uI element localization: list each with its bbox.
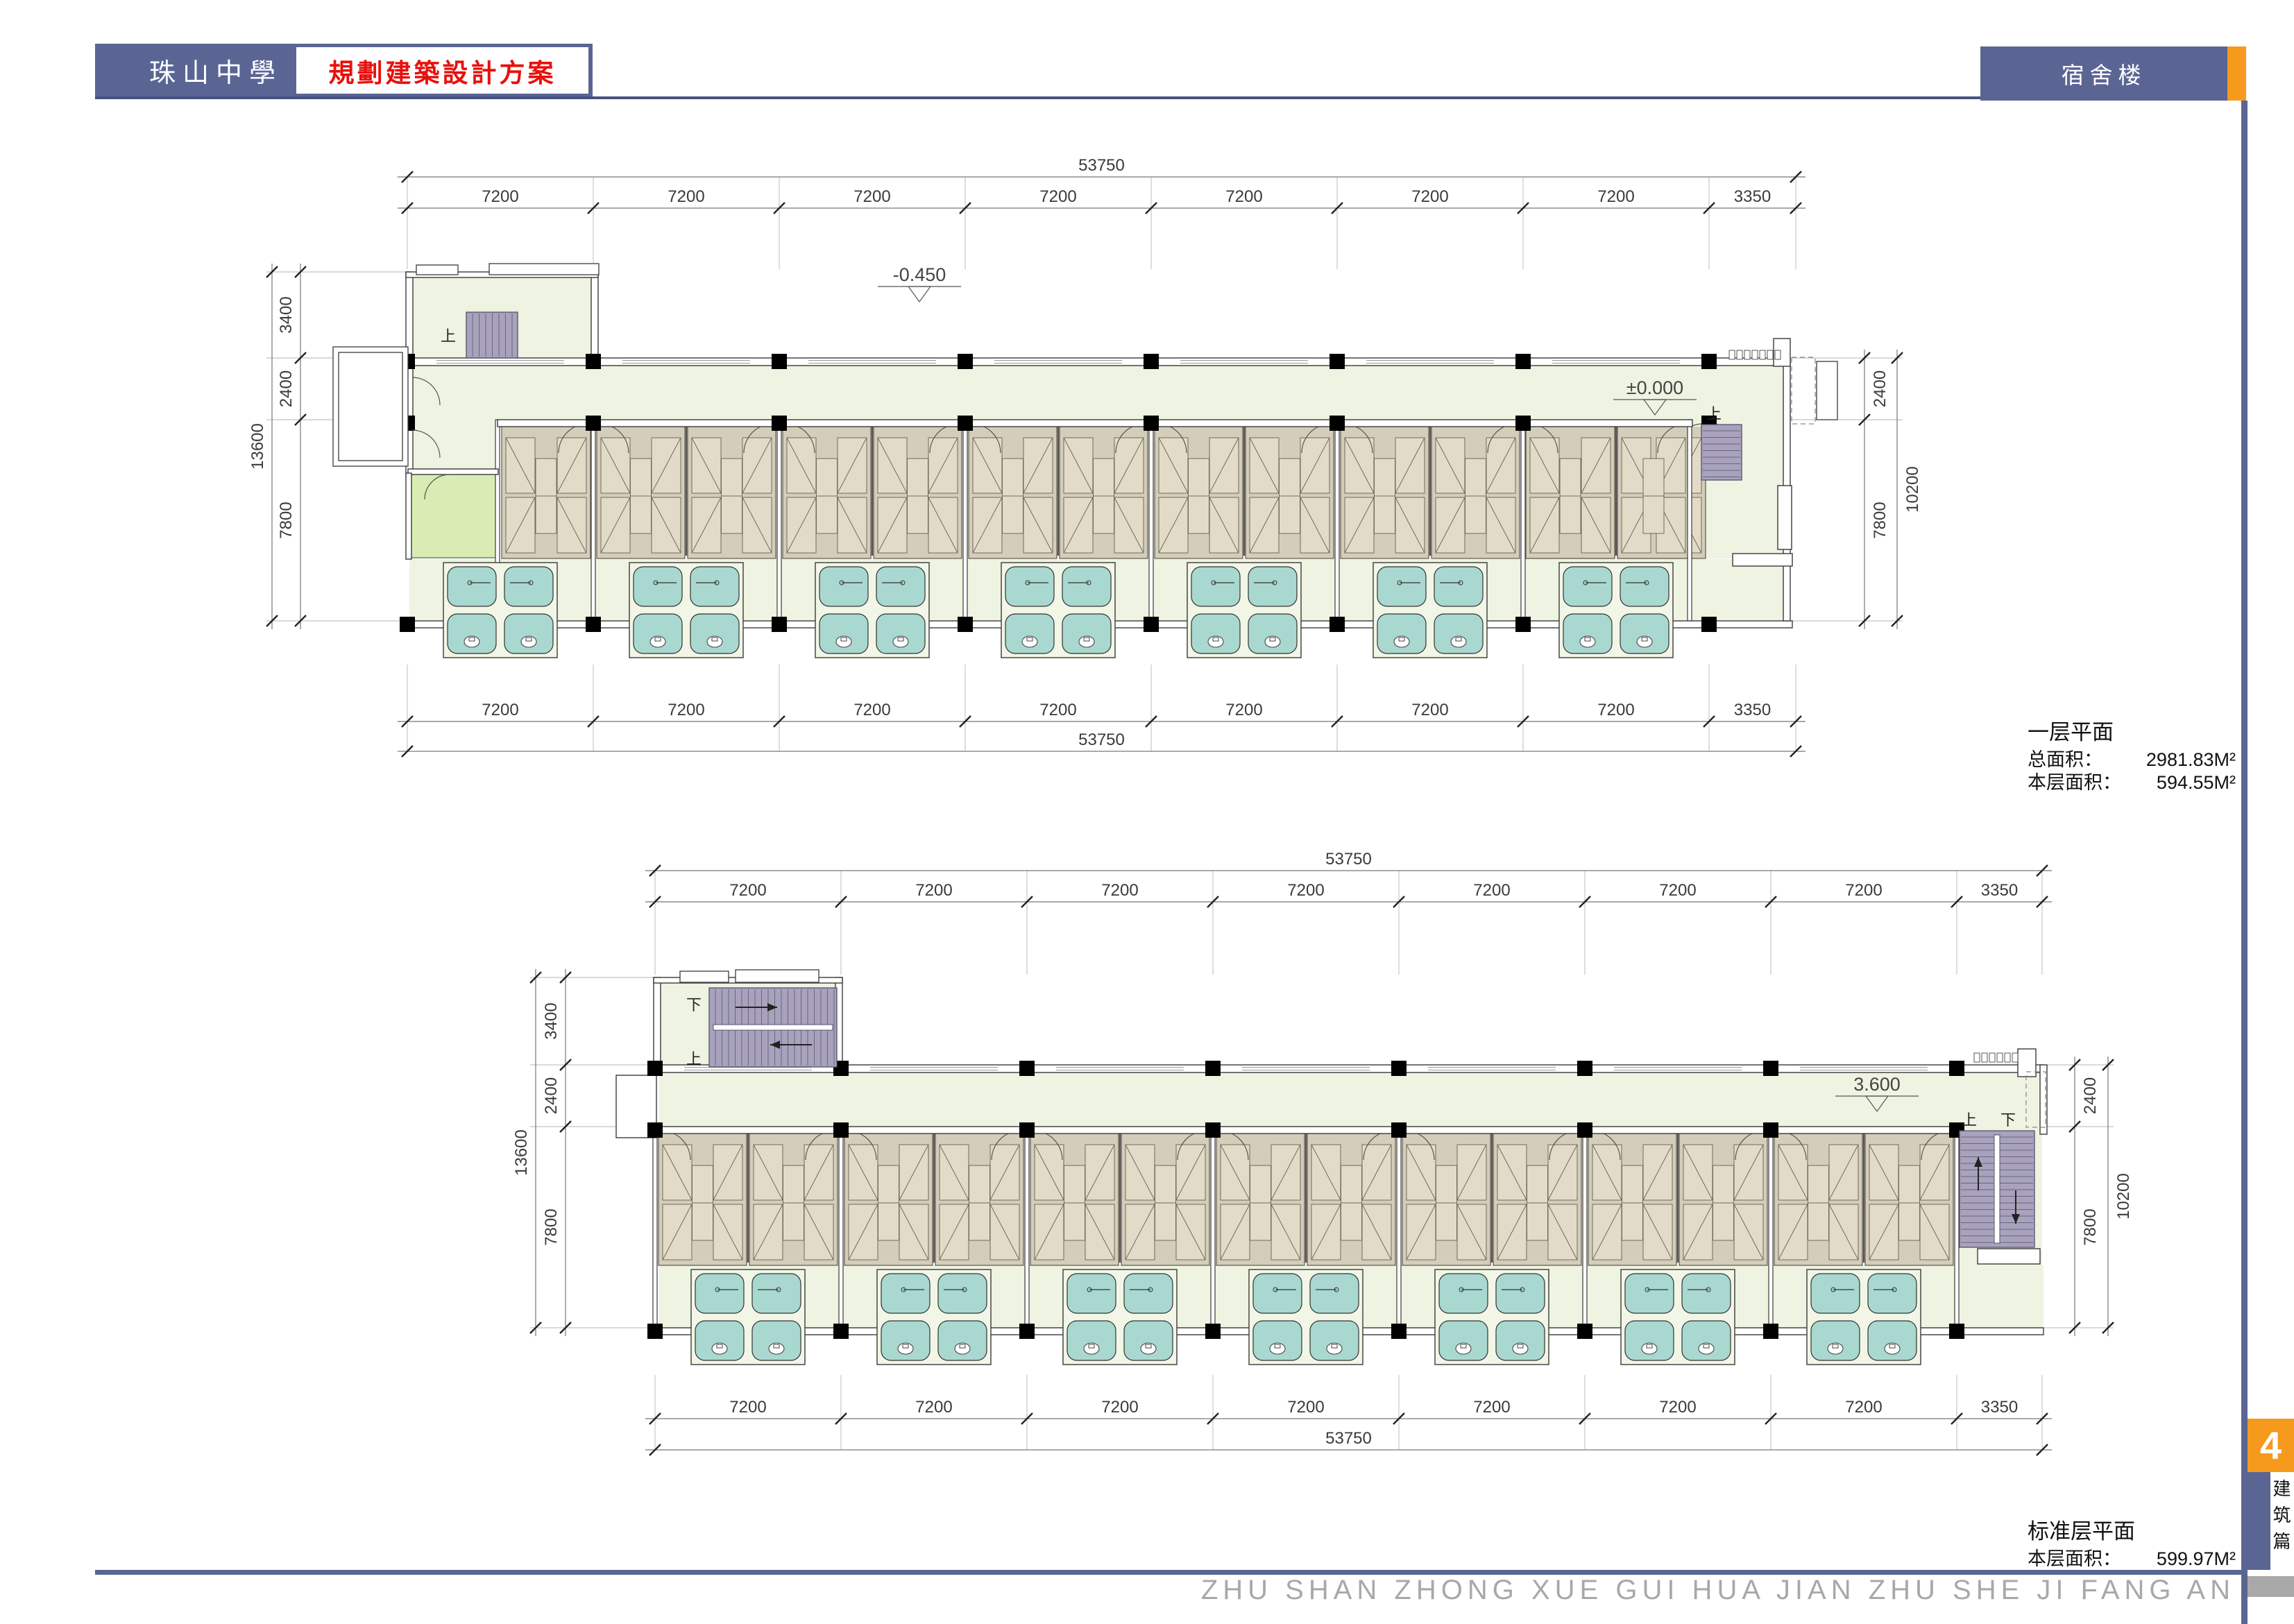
footer-divider [95,1570,2246,1575]
bath-cell [1248,567,1297,606]
bath-cell [1563,567,1612,606]
partition-wall [653,1127,657,1328]
dim-label: 7200 [729,881,766,900]
toilet-icon [774,1344,779,1348]
dim-label: 7200 [729,1398,766,1417]
bath-cell [1062,567,1111,606]
partition-wall [591,420,595,621]
bath-cell [1625,1274,1674,1313]
partition-wall [777,420,781,621]
dim-label: 3350 [1734,701,1771,719]
toilet-icon [898,638,903,641]
bath-cell [1191,567,1240,606]
toilet-icon [1399,638,1404,641]
wall [407,358,1787,366]
toilet-icon [1213,638,1218,641]
canopy-outline [1792,357,1815,424]
column [1577,1061,1592,1076]
toilet-icon [1585,638,1590,641]
plan-detail [489,264,599,275]
column [647,1122,663,1138]
level-label: ±0.000 [1626,377,1683,398]
partition-wall [1769,1127,1773,1328]
bath-cell [634,567,682,606]
dim-label: 3350 [1734,187,1771,206]
entry-steps [1752,350,1758,359]
dim-label: 7200 [915,881,952,900]
plan1-floor-area: 本层面积： 594.55M² [2028,771,2236,794]
toilet-icon [1642,638,1647,641]
column [647,1061,663,1076]
stair-label: 上 [1706,405,1722,422]
column [1205,1061,1221,1076]
column [958,617,973,632]
plan-detail [416,265,458,275]
dim-label: 3350 [1981,1398,2018,1417]
dim-label: 7200 [482,187,518,206]
column [1577,1324,1592,1339]
dim-label: 2400 [1871,370,1889,407]
entry-steps [1974,1053,1980,1062]
entry-steps [1737,350,1742,359]
wall [591,272,598,358]
column [1019,1122,1035,1138]
toilet-icon [1270,638,1275,641]
dim-label: 7200 [1287,1398,1324,1417]
toilet-icon [1518,1344,1523,1348]
toilet-icon [1461,1344,1466,1348]
dim-label: 7200 [1473,881,1510,900]
column [586,354,601,369]
column [400,617,415,632]
partition-wall [963,420,967,621]
plan1-title: 一层平面 [2028,715,2236,746]
partition-wall [1335,420,1339,621]
wall [498,420,1692,427]
dim-label: 7800 [2081,1208,2100,1245]
toilet-icon [903,1344,908,1348]
dim-label: 53750 [1078,156,1125,175]
column [1329,354,1345,369]
column [772,617,787,632]
column [833,1122,849,1138]
footer-gray-block [2248,1576,2294,1597]
bath-cell [690,567,739,606]
column [1577,1122,1592,1138]
column [1763,1122,1778,1138]
partition-wall [1211,1127,1215,1328]
bath-cell [752,1274,801,1313]
wall [1978,1249,2040,1264]
bath-cell [1620,567,1669,606]
wall [658,1127,1957,1134]
dim-label: 3400 [277,296,296,333]
column [833,1324,849,1339]
bath-cell [1310,1274,1359,1313]
plan-detail [680,971,729,982]
bath-cell [1868,1274,1917,1313]
wall [655,1065,2044,1072]
bath-cell [1811,1274,1860,1313]
plan-detail [736,970,819,982]
dim-label: 7800 [542,1208,561,1245]
wall [406,473,411,559]
column [1391,1061,1407,1076]
dim-label: 2400 [277,370,296,407]
stair [1701,425,1742,480]
dim-label: 7200 [853,187,890,206]
entry-steps [1997,1053,2003,1062]
bath-cell [876,567,925,606]
bath-cell [819,567,868,606]
bath-cell [1067,1274,1116,1313]
partition-wall [839,1127,843,1328]
bath-cell [1253,1274,1302,1313]
column [1144,354,1159,369]
stair-label: 上 [686,1050,702,1068]
dim-label: 10200 [2114,1173,2133,1220]
entry-steps [2005,1053,2010,1062]
dim-label: 7200 [1659,881,1696,900]
level-triangle [908,287,931,302]
bath-cell [1439,1274,1488,1313]
bath-cell [938,1274,987,1313]
column [1019,1061,1035,1076]
toilet-icon [1084,638,1089,641]
dim-label: 7200 [668,187,704,206]
bath-cell [504,567,553,606]
entry-steps [1775,350,1781,359]
column [1205,1324,1221,1339]
toilet-icon [717,1344,722,1348]
dim-label: 7800 [277,502,296,538]
section-color-bar [2248,1472,2270,1570]
dim-label: 7200 [1597,701,1634,719]
column [958,416,973,431]
entry-steps [1982,1053,1987,1062]
plan2-caption: 标准层平面 本层面积： 599.97M² [2028,1514,2236,1571]
column [772,354,787,369]
green-room [409,473,498,558]
entry-steps [1729,350,1735,359]
bath-cell [1005,567,1054,606]
bath-cell [1682,1274,1731,1313]
column [1515,416,1531,431]
dim-label: 7800 [1871,502,1889,538]
column [1391,1324,1407,1339]
toilet-icon [1647,1344,1652,1348]
dim-label: 7200 [1287,881,1324,900]
entry-steps [1760,350,1765,359]
entry-steps [2012,1053,2018,1062]
toilet-icon [960,1344,965,1348]
entry-steps [1989,1053,1995,1062]
toilet-icon [1332,1344,1337,1348]
column [1701,354,1717,369]
level-label: 3.600 [1853,1074,1901,1095]
plan2-floor-area: 本层面积： 599.97M² [2028,1548,2236,1571]
toilet-icon [469,638,475,641]
column [772,416,787,431]
dim-label: 10200 [1903,466,1922,513]
toilet-icon [841,638,847,641]
plan-detail [1817,361,1837,420]
dim-label: 7200 [1411,187,1448,206]
dim-label: 7200 [1225,701,1262,719]
stair-label: 上 [441,327,456,345]
stair-label: 下 [2000,1111,2016,1129]
column [1391,1122,1407,1138]
stair-rail [713,1025,833,1030]
partition-wall [1688,420,1692,621]
column [1144,416,1159,431]
corridor-floor [409,420,498,473]
partition-wall [1025,1127,1029,1328]
section-label: 建筑篇 [2273,1479,2294,1558]
dim-label: 7200 [915,1398,952,1417]
column [586,416,601,431]
wall [1778,486,1792,549]
plan1-caption: 一层平面 总面积： 2981.83M² 本层面积： 594.55M² [2028,715,2236,794]
dim-label: 7200 [1659,1398,1696,1417]
plan-detail [339,352,402,461]
dim-label: 2400 [542,1077,561,1114]
wall [654,977,661,1068]
dim-label: 7200 [1411,701,1448,719]
bath-cell [1377,567,1426,606]
dim-label: 53750 [1078,730,1125,749]
dim-label: 7200 [1039,187,1076,206]
entry-steps [1767,350,1773,359]
level-label: -0.450 [893,264,946,285]
dim-label: 7200 [1225,187,1262,206]
plan1-total-area: 总面积： 2981.83M² [2028,749,2236,771]
dim-label: 53750 [1325,1429,1372,1448]
partition-wall [1397,1127,1401,1328]
bath-cell [881,1274,930,1313]
partition-wall [1955,1127,1959,1328]
toilet-icon [655,638,661,641]
column [1205,1122,1221,1138]
dim-label: 7200 [1101,881,1138,900]
bath-cell [695,1274,744,1313]
partition-wall [1521,420,1525,621]
bath-cell [448,567,496,606]
dim-label: 7200 [482,701,518,719]
dim-label: 7200 [853,701,890,719]
partition-wall [1583,1127,1587,1328]
entry-steps [1744,350,1750,359]
stair-rail [1994,1135,2000,1243]
bath-cell [1496,1274,1545,1313]
bath-cell [1124,1274,1173,1313]
plan2-title: 标准层平面 [2028,1514,2236,1545]
column [1763,1324,1778,1339]
toilet-icon [1456,638,1461,641]
dim-label: 7200 [1039,701,1076,719]
toilet-icon [712,638,717,641]
dim-label: 13600 [512,1129,531,1176]
toilet-icon [1889,1344,1895,1348]
floor-plans-canvas: 5375072007200720072007200720072003350720… [0,0,2294,1624]
column [647,1324,663,1339]
dim-label: 7200 [1845,1398,1882,1417]
dim-label: 7200 [1473,1398,1510,1417]
dim-label: 2400 [2081,1077,2100,1114]
dim-label: 53750 [1325,850,1372,869]
partition-wall [1149,420,1153,621]
wall [2018,1049,2036,1077]
dim-label: 7200 [1597,187,1634,206]
column [1329,416,1345,431]
dim-label: 7200 [1845,881,1882,900]
dim-label: 3400 [542,1002,561,1039]
drawing-sheet: 珠山中學 規劃建築設計方案 宿舍楼 5375072007200720072007… [0,0,2294,1624]
bath-cell [1434,567,1483,606]
page-number-box: 4 [2248,1419,2294,1472]
page-number: 4 [2260,1423,2282,1468]
wall [408,469,498,475]
watermark-text: ZHU SHAN ZHONG XUE GUI HUA JIAN ZHU SHE … [1201,1575,2235,1606]
corridor-floor [409,361,1787,420]
stair-label: 上 [1962,1111,1977,1129]
column [1515,617,1531,632]
column [958,354,973,369]
wall [1733,554,1792,566]
column [1144,617,1159,632]
toilet-icon [1027,638,1033,641]
toilet-icon [526,638,532,641]
dim-label: 3350 [1981,881,2018,900]
column [1019,1324,1035,1339]
dim-label: 7200 [1101,1398,1138,1417]
column [1949,1061,1964,1076]
dim-label: 7200 [668,701,704,719]
column [1515,354,1531,369]
toilet-icon [1089,1344,1094,1348]
column [1949,1324,1964,1339]
corridor-floor [659,1068,2044,1127]
toilet-icon [1833,1344,1838,1348]
column [1329,617,1345,632]
toilet-icon [1703,1344,1709,1348]
toilet-icon [1275,1344,1280,1348]
column [1701,617,1717,632]
dim-label: 13600 [248,423,267,470]
column [1763,1061,1778,1076]
toilet-icon [1146,1344,1151,1348]
stair-label: 下 [686,996,702,1014]
column [586,617,601,632]
